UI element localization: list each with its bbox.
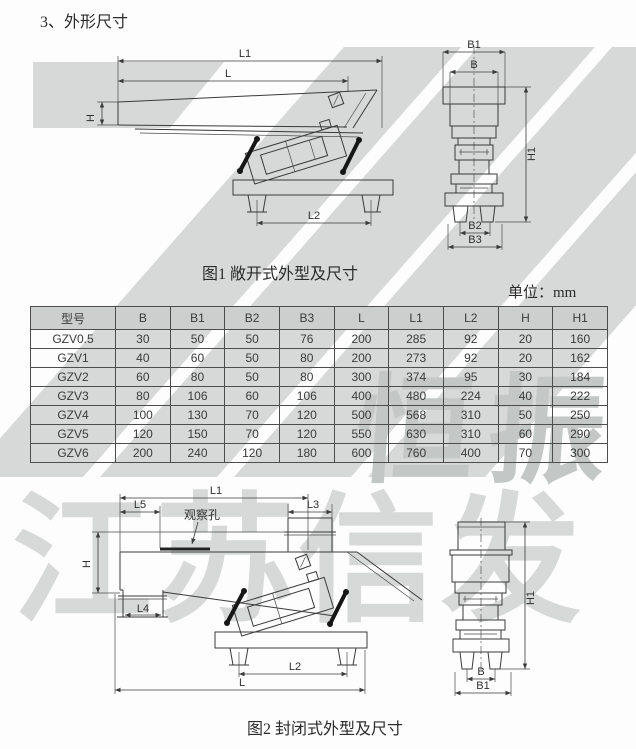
value-cell: 760 <box>389 444 444 463</box>
value-cell: 80 <box>279 349 334 368</box>
figure1-drawing: L1 L H <box>85 38 571 266</box>
value-cell: 80 <box>170 368 225 387</box>
dim-label-b3: B3 <box>468 234 481 246</box>
model-cell: GZV5 <box>31 425 116 444</box>
flow-direction-symbol <box>295 554 310 569</box>
dim-label-l4: L4 <box>137 603 149 615</box>
dim-label-l3: L3 <box>307 499 319 511</box>
figure2-caption: 图2 封闭式外型及尺寸 <box>160 715 490 739</box>
table-row: GZV2608050803003749530184 <box>31 368 608 387</box>
value-cell: 400 <box>443 444 498 463</box>
dimensions-table: 型号BB1B2B3LL1L2HH1 GZV0.53050507620028592… <box>30 306 608 463</box>
figure2-drawing: L1 L5 L3 观察孔 H L4 <box>70 486 636 712</box>
value-cell: 70 <box>225 406 280 425</box>
value-cell: 200 <box>334 349 389 368</box>
dim-label-b: B <box>477 666 484 678</box>
model-cell: GZV6 <box>31 444 116 463</box>
dim-label-l: L <box>225 68 231 80</box>
flow-direction-symbol <box>328 92 343 107</box>
dim-label-b2: B2 <box>468 220 481 232</box>
value-cell: 600 <box>334 444 389 463</box>
value-cell: 92 <box>443 349 498 368</box>
value-cell: 70 <box>498 444 553 463</box>
table-row: GZV0.5305050762002859220160 <box>31 330 608 349</box>
column-header: 型号 <box>31 307 116 330</box>
value-cell: 60 <box>170 349 225 368</box>
value-cell: 290 <box>553 425 608 444</box>
column-header: H1 <box>553 307 608 330</box>
value-cell: 273 <box>389 349 444 368</box>
section-title: 3、外形尺寸 <box>40 8 128 32</box>
base-frame <box>233 180 393 195</box>
dim-label-l1: L1 <box>239 48 251 60</box>
value-cell: 100 <box>116 406 171 425</box>
value-cell: 60 <box>116 368 171 387</box>
value-cell: 30 <box>498 368 553 387</box>
value-cell: 200 <box>334 330 389 349</box>
dim-label-h1: H1 <box>525 591 537 605</box>
value-cell: 400 <box>334 387 389 406</box>
base-frame <box>215 632 367 648</box>
value-cell: 120 <box>225 444 280 463</box>
table-row: GZV620024012018060076040070300 <box>31 444 608 463</box>
value-cell: 120 <box>279 406 334 425</box>
table-row: GZV51201507012055063031060290 <box>31 425 608 444</box>
value-cell: 50 <box>498 406 553 425</box>
value-cell: 106 <box>279 387 334 406</box>
column-header: L <box>334 307 389 330</box>
value-cell: 184 <box>553 368 608 387</box>
leaf-spring <box>227 591 244 623</box>
value-cell: 50 <box>170 330 225 349</box>
dim-label-h: H <box>81 560 93 568</box>
value-cell: 480 <box>389 387 444 406</box>
figure1-caption: 图1 敞开式外型及尺寸 <box>130 260 430 284</box>
dim-label-l2: L2 <box>308 210 320 222</box>
value-cell: 50 <box>225 349 280 368</box>
value-cell: 300 <box>553 444 608 463</box>
model-cell: GZV3 <box>31 387 116 406</box>
column-header: B <box>116 307 171 330</box>
table-row: GZV3801066010640048022440222 <box>31 387 608 406</box>
value-cell: 40 <box>116 349 171 368</box>
value-cell: 80 <box>116 387 171 406</box>
value-cell: 150 <box>170 425 225 444</box>
value-cell: 310 <box>443 425 498 444</box>
value-cell: 130 <box>170 406 225 425</box>
model-cell: GZV0.5 <box>31 330 116 349</box>
value-cell: 70 <box>225 425 280 444</box>
column-header: H <box>498 307 553 330</box>
dim-label-b: B <box>470 59 477 71</box>
dim-label-l1: L1 <box>210 486 222 497</box>
value-cell: 50 <box>225 368 280 387</box>
value-cell: 95 <box>443 368 498 387</box>
value-cell: 240 <box>170 444 225 463</box>
value-cell: 60 <box>498 425 553 444</box>
column-header: B2 <box>225 307 280 330</box>
value-cell: 60 <box>225 387 280 406</box>
value-cell: 224 <box>443 387 498 406</box>
dim-label-b1: B1 <box>476 680 489 692</box>
value-cell: 20 <box>498 349 553 368</box>
model-cell: GZV1 <box>31 349 116 368</box>
value-cell: 250 <box>553 406 608 425</box>
dim-label-l5: L5 <box>134 499 146 511</box>
dim-label-l: L <box>239 677 245 689</box>
value-cell: 200 <box>116 444 171 463</box>
value-cell: 300 <box>334 368 389 387</box>
value-cell: 106 <box>170 387 225 406</box>
value-cell: 50 <box>225 330 280 349</box>
value-cell: 30 <box>116 330 171 349</box>
value-cell: 180 <box>279 444 334 463</box>
value-cell: 80 <box>279 368 334 387</box>
value-cell: 500 <box>334 406 389 425</box>
dim-label-l2: L2 <box>289 661 301 673</box>
exciter-assembly <box>243 118 347 184</box>
leaf-spring <box>240 139 257 171</box>
value-cell: 550 <box>334 425 389 444</box>
value-cell: 630 <box>389 425 444 444</box>
value-cell: 76 <box>279 330 334 349</box>
dim-label-h1: H1 <box>526 147 538 161</box>
model-cell: GZV4 <box>31 406 116 425</box>
value-cell: 120 <box>279 425 334 444</box>
model-cell: GZV2 <box>31 368 116 387</box>
value-cell: 222 <box>553 387 608 406</box>
value-cell: 374 <box>389 368 444 387</box>
column-header: B1 <box>170 307 225 330</box>
value-cell: 120 <box>116 425 171 444</box>
table-row: GZV1406050802002739220162 <box>31 349 608 368</box>
value-cell: 20 <box>498 330 553 349</box>
column-header: L1 <box>389 307 444 330</box>
dim-label-b1: B1 <box>467 39 480 51</box>
table-row: GZV41001307012050056831050250 <box>31 406 608 425</box>
value-cell: 92 <box>443 330 498 349</box>
value-cell: 285 <box>389 330 444 349</box>
column-header: L2 <box>443 307 498 330</box>
observation-hole-label: 观察孔 <box>184 508 220 522</box>
value-cell: 160 <box>553 330 608 349</box>
value-cell: 568 <box>389 406 444 425</box>
column-header: B3 <box>279 307 334 330</box>
dim-label-h: H <box>85 114 97 122</box>
exciter-assembly <box>230 570 334 636</box>
table-header: 型号BB1B2B3LL1L2HH1 <box>31 307 608 330</box>
unit-label: 单位：mm <box>508 281 576 302</box>
document-page: 恒振 江苏信发 3、外形尺寸 L1 L H <box>0 0 636 749</box>
value-cell: 310 <box>443 406 498 425</box>
value-cell: 40 <box>498 387 553 406</box>
value-cell: 162 <box>553 349 608 368</box>
